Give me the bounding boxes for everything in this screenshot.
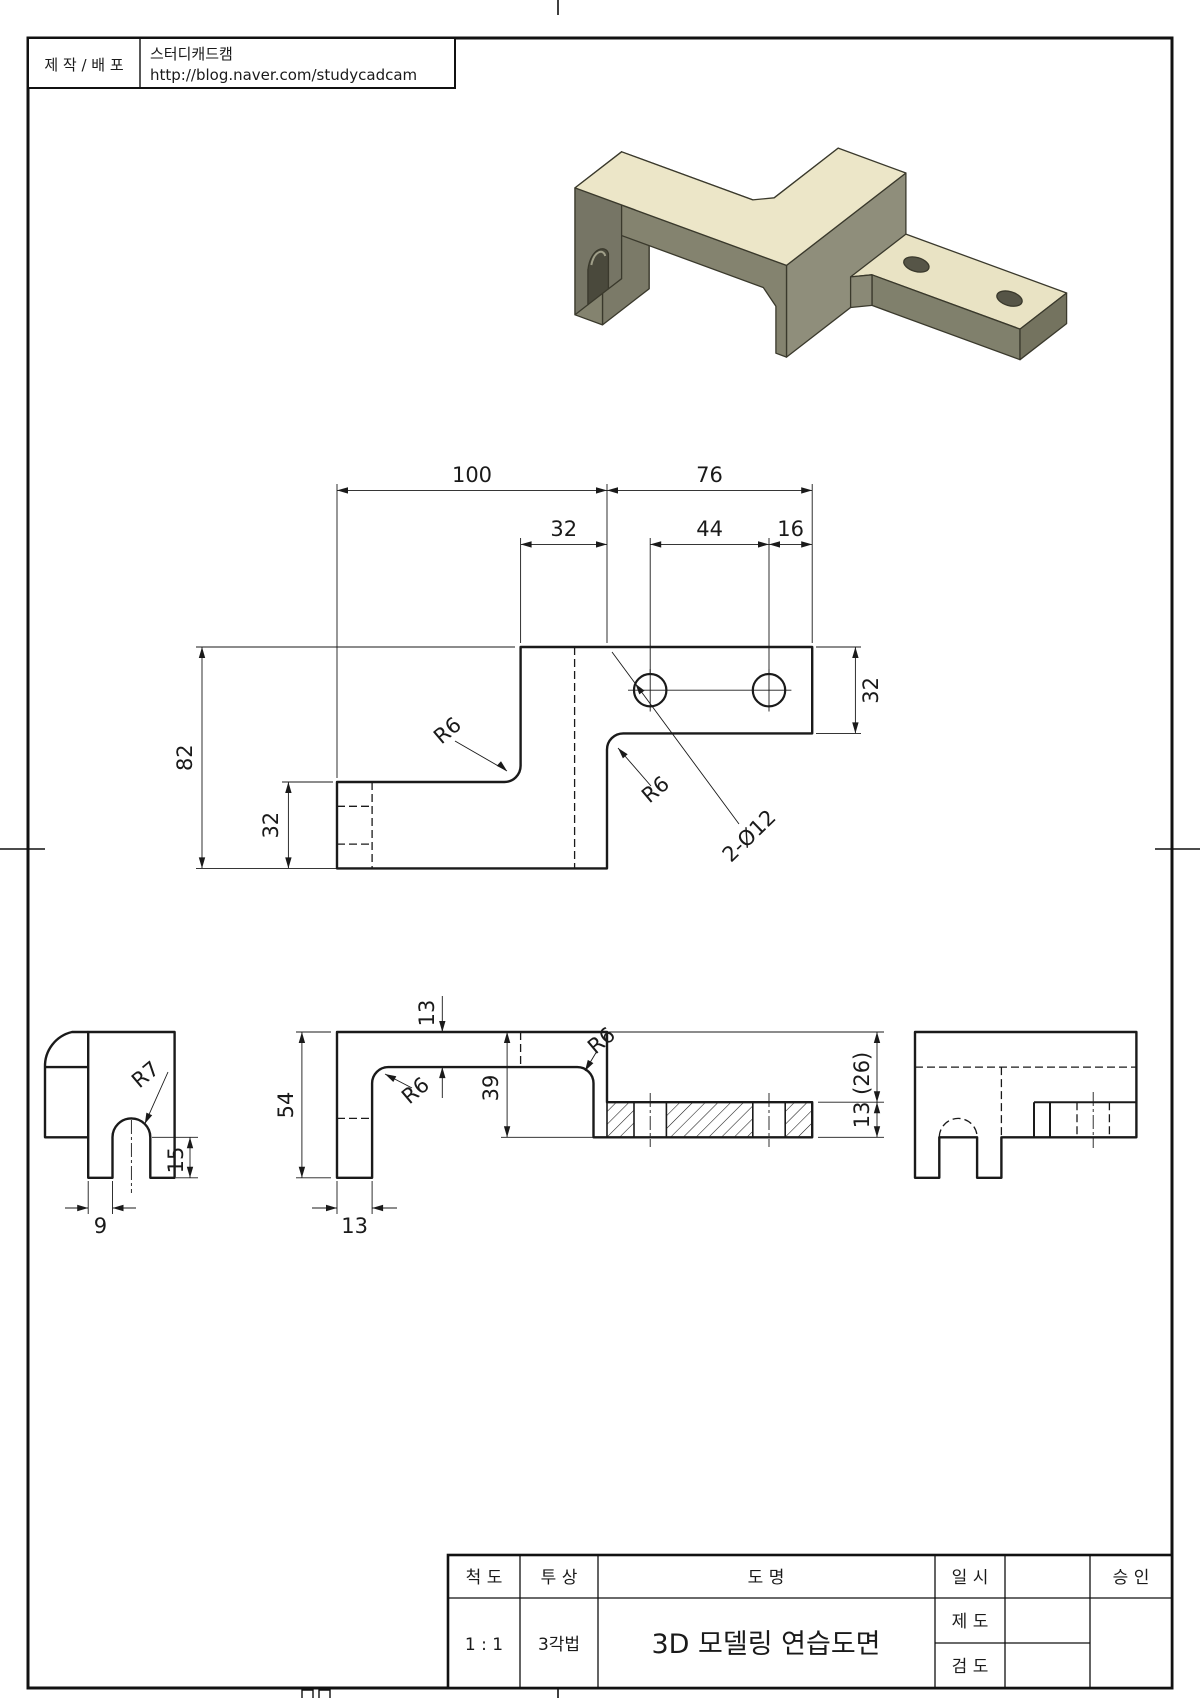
right-view-plate-edges — [1034, 1102, 1136, 1137]
dim-39: 39 — [479, 1075, 503, 1102]
scale-value: 1 : 1 — [465, 1635, 503, 1655]
front-view: 54 13 39 13 (26) 13 R6 R6 — [274, 996, 884, 1238]
dim-32-left: 32 — [259, 812, 283, 839]
publisher-name: 스터디캐드캠 — [150, 45, 233, 63]
dim-13-bottom: 13 — [341, 1214, 368, 1238]
drawing-sheet: { "publisher": { "label": "제 작 / 배 포", "… — [0, 0, 1200, 1698]
dim-15: 15 — [164, 1147, 188, 1174]
dim-r6-inner: R6 — [397, 1072, 434, 1108]
top-view-hidden-lines — [337, 647, 575, 868]
scale-label: 척 도 — [466, 1568, 503, 1588]
publisher-label: 제 작 / 배 포 — [44, 56, 124, 74]
publisher-url: http://blog.naver.com/studycadcam — [150, 66, 417, 84]
dim-r6-outer: R6 — [583, 1022, 620, 1058]
dim-82: 82 — [173, 744, 197, 771]
left-side-view: R7 15 9 — [45, 1032, 198, 1238]
dim-9: 9 — [94, 1214, 107, 1238]
drawing-title: 3D 모델링 연습도면 — [651, 1629, 880, 1660]
dim-54: 54 — [274, 1092, 298, 1119]
dim-13-26: 13 (26) — [850, 1052, 874, 1129]
front-view-section — [607, 1102, 812, 1137]
drawing-name-label: 도 명 — [748, 1568, 785, 1588]
drawing-canvas: 제 작 / 배 포 스터디캐드캠 http://blog.naver.com/s… — [0, 0, 1200, 1698]
top-view-leader-lines — [455, 652, 739, 824]
date-label: 일 시 — [952, 1568, 989, 1588]
dim-r6-left: R6 — [429, 712, 466, 748]
projection-label: 투 상 — [541, 1568, 578, 1588]
drafter-label: 제 도 — [952, 1612, 989, 1632]
dim-r7: R7 — [127, 1056, 164, 1092]
dim-13-top: 13 — [415, 1000, 439, 1027]
right-view-outline — [915, 1032, 1136, 1178]
iso-face-plate-chamfer — [851, 275, 872, 308]
approval-label: 승 인 — [1113, 1568, 1150, 1588]
isometric-view — [575, 148, 1067, 360]
fold-marks — [302, 1690, 330, 1698]
dim-2-d12: 2-Ø12 — [718, 805, 781, 867]
right-side-view — [915, 1032, 1136, 1178]
publisher-box: 제 작 / 배 포 스터디캐드캠 http://blog.naver.com/s… — [28, 38, 455, 88]
projection-value: 3각법 — [538, 1635, 580, 1655]
left-view-rear-profile — [45, 1032, 88, 1137]
title-block: 척 도 투 상 도 명 일 시 승 인 제 도 검 도 1 : 1 3각법 3D… — [448, 1555, 1172, 1688]
dim-32-right: 32 — [859, 677, 883, 704]
dim-44: 44 — [696, 517, 723, 541]
dim-100: 100 — [452, 463, 492, 487]
dim-76: 76 — [696, 463, 723, 487]
checker-label: 검 도 — [952, 1657, 989, 1677]
dim-16: 16 — [777, 517, 804, 541]
left-view-dimension-lines — [65, 1072, 190, 1208]
dim-32-top: 32 — [550, 517, 577, 541]
top-view: 100 76 32 44 16 82 32 32 R6 R6 2-Ø12 — [173, 463, 883, 868]
